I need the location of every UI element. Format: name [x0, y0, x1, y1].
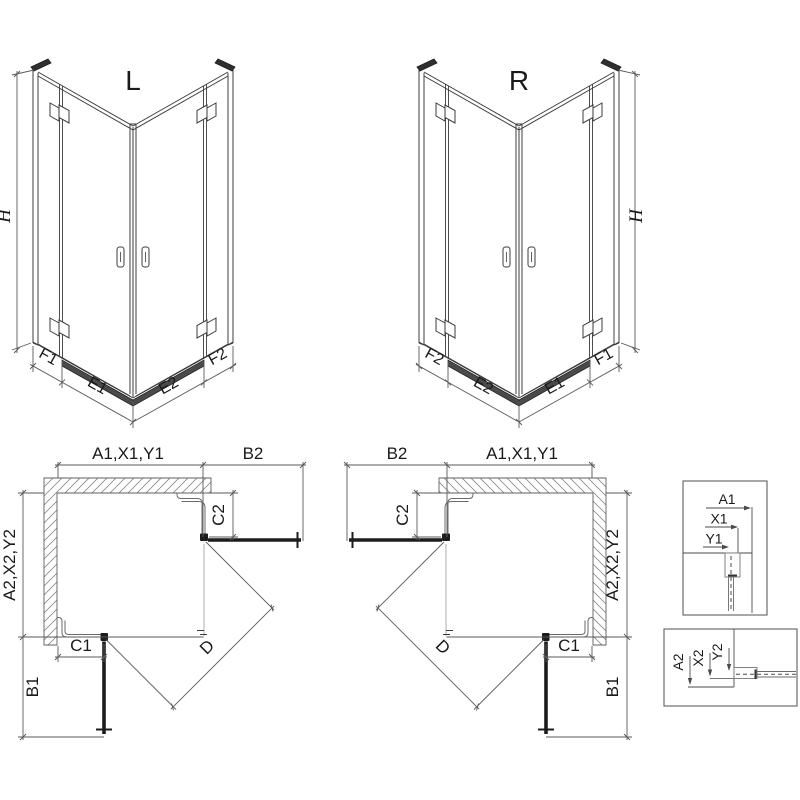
- iso-left-height-label: H: [0, 208, 15, 224]
- plan-right-width-total: A1,X1,Y1: [486, 444, 558, 463]
- iso-view-left: L H F1 E1 E2 F2: [0, 59, 236, 428]
- iso-left-title: L: [125, 65, 141, 96]
- detail-bottom-label-y2: Y2: [709, 643, 725, 660]
- plan-view-right: B2 A1,X1,Y1 A2,X2,Y2 B1 C2 C1 D: [344, 444, 632, 740]
- plan-left-depth-total: A2,X2,Y2: [0, 529, 19, 601]
- technical-drawing-page: L H F1 E1 E2 F2 R H F2 E2 E1 F1 A1,X1,Y1…: [0, 0, 800, 800]
- plan-left-c1: C1: [70, 636, 92, 655]
- plan-right-b1: B1: [603, 677, 622, 698]
- plan-right-b2: B2: [387, 444, 408, 463]
- shower-enclosure-dimension-drawing: L H F1 E1 E2 F2 R H F2 E2 E1 F1 A1,X1,Y1…: [0, 0, 800, 800]
- plan-left-diagonal: D: [196, 636, 218, 658]
- detail-top-wall-profile: [725, 553, 740, 577]
- plan-left-width-total: A1,X1,Y1: [92, 444, 164, 463]
- detail-bottom-label-x2: X2: [690, 649, 706, 666]
- detail-bottom-wall-profile: [734, 668, 757, 679]
- plan-right-c2: C2: [393, 504, 412, 526]
- plan-left-b2: B2: [243, 444, 264, 463]
- plan-right-diagonal: D: [432, 636, 454, 658]
- detail-top-label-a1: A1: [718, 491, 735, 507]
- iso-right-segment-f2: F2: [422, 345, 447, 369]
- detail-top-label-y1: Y1: [705, 531, 722, 547]
- plan-left-c2: C2: [209, 504, 228, 526]
- iso-right-segment-f1: F1: [592, 345, 617, 369]
- plan-left-b1: B1: [23, 677, 42, 698]
- detail-top-label-x1: X1: [710, 511, 727, 527]
- detail-panel-bottom: A2 X2 Y2: [664, 629, 797, 706]
- iso-right-height-label: H: [626, 208, 647, 224]
- plan-right-depth-total: A2,X2,Y2: [603, 529, 622, 601]
- iso-right-title: R: [509, 65, 529, 96]
- detail-bottom-label-a2: A2: [670, 653, 686, 670]
- plan-view-left: A1,X1,Y1 B2 A2,X2,Y2 B1 C2 C1 D: [0, 444, 306, 740]
- detail-panel-top: A1 X1 Y1: [683, 481, 767, 615]
- iso-left-segment-f2: F2: [206, 345, 231, 369]
- iso-left-segment-f1: F1: [36, 345, 61, 369]
- iso-view-right: R H F2 E2 E1 F1: [416, 59, 647, 428]
- plan-right-c1: C1: [558, 636, 580, 655]
